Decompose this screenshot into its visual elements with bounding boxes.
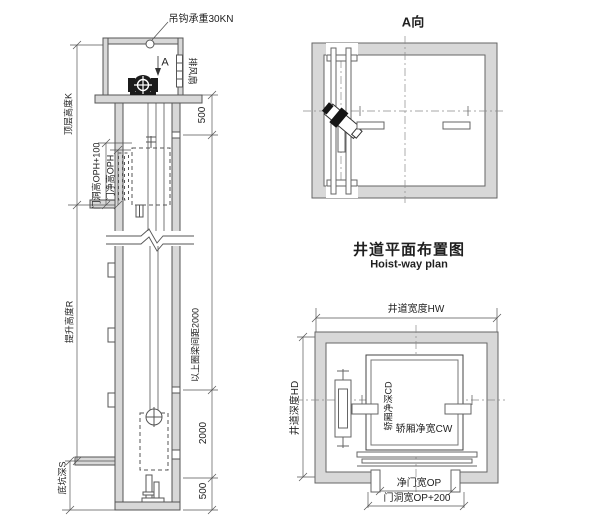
- dim-car-width-label: 轿厢净宽CW: [396, 425, 453, 435]
- a-view-title: A向: [402, 16, 424, 29]
- exhaust-fan-label: 排风扇: [188, 57, 197, 84]
- ropes-and-rails: [148, 103, 164, 412]
- elevator-drawing-page: 吊钩承重30KN A 排风扇 500 顶层高度K 门洞高OPH+100 门净高O…: [0, 0, 600, 523]
- dim-ring-beam-spacing: 以上圈梁间距2000: [192, 308, 201, 382]
- hook-load-label: 吊钩承重30KN: [168, 15, 233, 25]
- dim-top-floor-height: 顶层高度K: [65, 93, 74, 135]
- view-a-arrow: [155, 56, 161, 76]
- view-a-marker: A: [161, 58, 168, 69]
- hoistway-plan-title-cn: 井道平面布置图: [353, 243, 465, 258]
- hook-leader-line: [152, 22, 168, 40]
- dim-2000: 2000: [199, 422, 209, 444]
- hoisting-hook: [146, 40, 154, 48]
- dim-door-clear-height: 门净高OPH: [107, 155, 116, 202]
- car-section: [119, 136, 171, 217]
- dim-500-bottom: 500: [199, 483, 209, 500]
- machine-beam-left: [357, 122, 384, 129]
- dim-pit-depth: 底坑深S: [59, 461, 68, 494]
- machine-beam-right: [443, 122, 470, 129]
- drawing-linework: [0, 0, 600, 523]
- car-plan: [366, 355, 463, 450]
- machine-room: [95, 22, 202, 103]
- section-view: [62, 22, 218, 514]
- hoistway-plan-title-en: Hoist-way plan: [370, 260, 448, 271]
- dim-machine-room-500: 500: [198, 107, 208, 124]
- dim-car-depth-label: 轿厢净深CD: [385, 382, 394, 431]
- a-view: [303, 36, 505, 203]
- exhaust-fan: [177, 55, 183, 87]
- dim-hoistway-depth-label: 井道深度HD: [291, 381, 301, 435]
- counterweight: [335, 369, 351, 448]
- dim-hoistway-width-label: 井道宽度HW: [388, 305, 445, 315]
- dim-door-opening-height: 门洞高OPH+100: [93, 143, 102, 210]
- dim-door-opening-width-label: 门洞宽OP+200: [384, 494, 451, 504]
- pit: [140, 407, 168, 502]
- traction-machine: [128, 75, 158, 95]
- dim-lifting-height: 提升高度R: [66, 301, 75, 344]
- dims-right: [183, 91, 218, 514]
- dim-door-clear-width-label: 净门宽OP: [397, 479, 441, 489]
- buffers: [142, 475, 164, 502]
